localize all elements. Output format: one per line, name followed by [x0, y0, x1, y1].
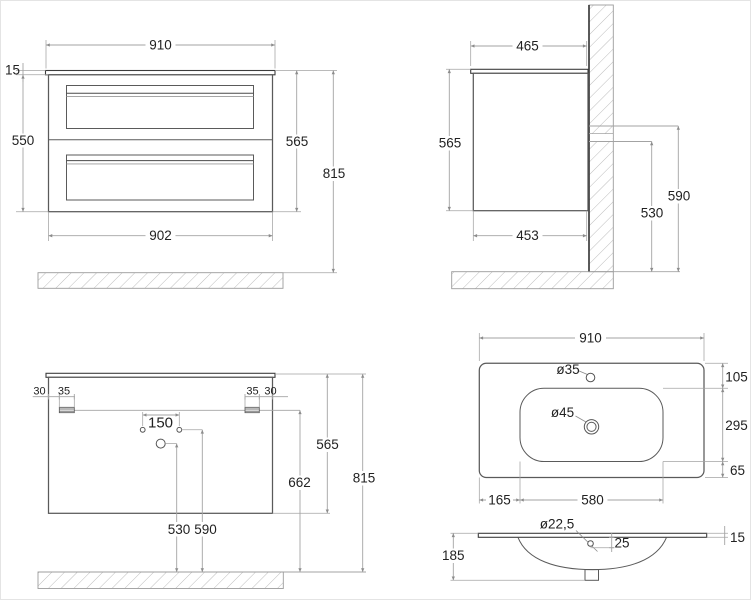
- label-top-295: 295: [725, 418, 748, 433]
- label-rear-530: 530: [168, 522, 191, 537]
- label-front-902: 902: [149, 228, 172, 243]
- overflow-hole: [588, 541, 594, 547]
- label-section-185: 185: [442, 548, 465, 563]
- basin-rim: [478, 533, 706, 537]
- label-side-590: 590: [668, 189, 691, 204]
- label-front-15: 15: [5, 63, 20, 78]
- label-drain-hole: ø45: [551, 405, 574, 420]
- countertop: [46, 71, 276, 75]
- siphon-hole: [156, 439, 165, 448]
- label-overflow-hole: ø22,5: [540, 517, 575, 532]
- label-rear-815: 815: [353, 471, 376, 486]
- supply-hole-left: [140, 427, 145, 432]
- label-faucet-hole: ø35: [556, 362, 579, 377]
- label-rear-590: 590: [194, 522, 217, 537]
- label-top-910: 910: [579, 331, 602, 346]
- label-rear-30-left: 30: [33, 386, 45, 398]
- floor-hatch: [38, 273, 283, 289]
- label-side-465: 465: [516, 39, 539, 54]
- label-top-105: 105: [725, 370, 748, 385]
- label-top-165: 165: [488, 493, 511, 508]
- label-side-530: 530: [641, 206, 664, 221]
- label-front-550: 550: [12, 133, 35, 148]
- label-front-815: 815: [323, 166, 346, 181]
- label-rear-150: 150: [148, 415, 173, 432]
- supply-hole-right: [177, 427, 182, 432]
- label-side-453: 453: [516, 228, 539, 243]
- wall-bracket-left: [59, 407, 74, 412]
- label-front-910: 910: [149, 38, 172, 53]
- label-top-65: 65: [730, 463, 745, 478]
- label-rear-565: 565: [316, 437, 339, 452]
- vanity-technical-drawing: 910 15 550 565 815: [0, 0, 751, 600]
- label-rear-35-left: 35: [58, 386, 70, 398]
- label-front-565: 565: [286, 134, 309, 149]
- floor-hatch: [38, 572, 283, 589]
- wall-bracket-right: [245, 407, 259, 412]
- label-side-565: 565: [439, 136, 462, 151]
- faucet-hole: [586, 373, 595, 382]
- label-section-25: 25: [614, 536, 629, 551]
- label-top-580: 580: [581, 493, 604, 508]
- label-rear-30-right: 30: [264, 386, 276, 398]
- cabinet-body: [49, 75, 273, 212]
- label-rear-662: 662: [288, 475, 311, 490]
- cabinet-body: [473, 73, 588, 210]
- label-section-15: 15: [730, 530, 745, 545]
- floor-hatch: [452, 272, 614, 289]
- label-rear-35-right: 35: [246, 386, 258, 398]
- dim-rear-hole-spacing: 150: [143, 412, 180, 432]
